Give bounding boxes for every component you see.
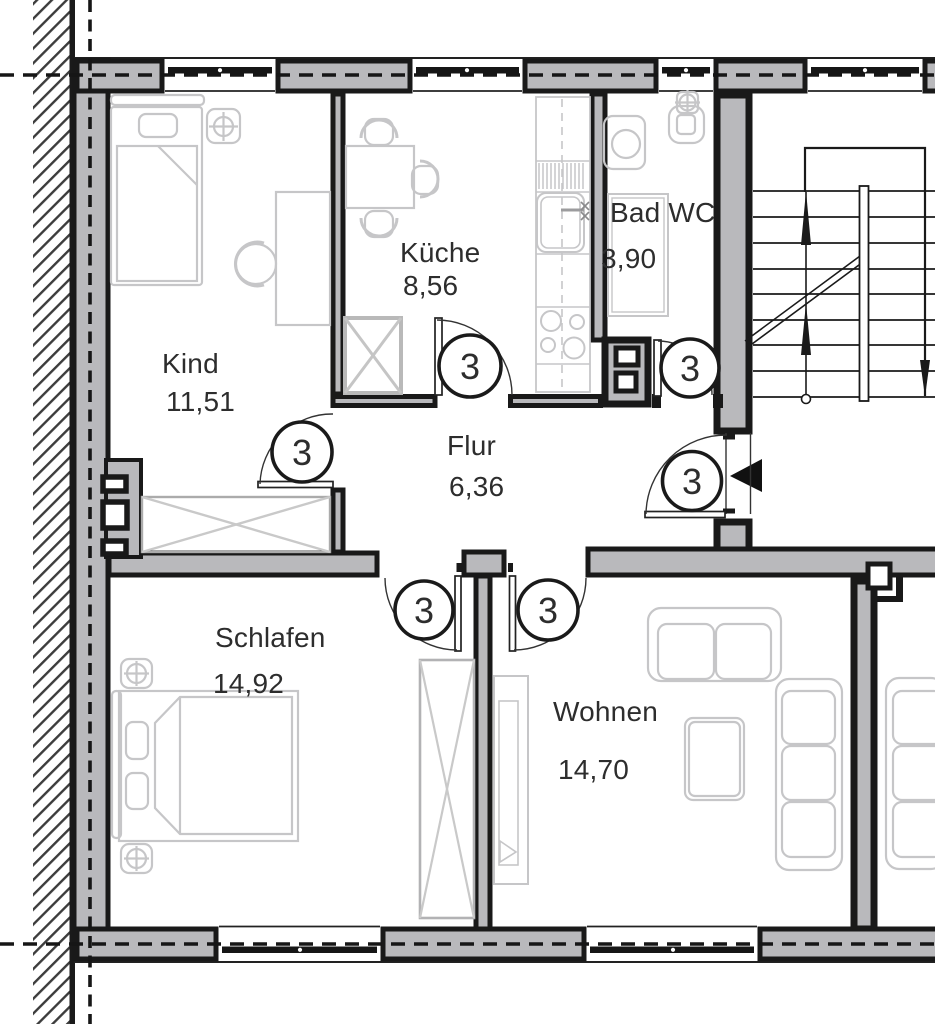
- svg-text:3: 3: [460, 346, 480, 387]
- svg-text:3: 3: [680, 348, 700, 389]
- svg-text:3: 3: [682, 461, 702, 502]
- svg-text:14,70: 14,70: [558, 754, 629, 785]
- svg-text:6,36: 6,36: [449, 471, 504, 502]
- svg-text:3: 3: [414, 590, 434, 631]
- svg-text:Flur: Flur: [447, 430, 496, 461]
- svg-text:3: 3: [292, 432, 312, 473]
- svg-text:Schlafen: Schlafen: [215, 622, 326, 653]
- svg-text:3: 3: [538, 590, 558, 631]
- svg-text:8,56: 8,56: [403, 270, 458, 301]
- svg-text:11,51: 11,51: [166, 386, 235, 417]
- svg-text:Kind: Kind: [162, 348, 219, 379]
- svg-text:14,92: 14,92: [213, 668, 284, 699]
- svg-text:3,90: 3,90: [601, 243, 656, 274]
- svg-text:Bad WC: Bad WC: [610, 197, 715, 228]
- svg-text:Küche: Küche: [400, 237, 480, 268]
- svg-text:Wohnen: Wohnen: [553, 696, 658, 727]
